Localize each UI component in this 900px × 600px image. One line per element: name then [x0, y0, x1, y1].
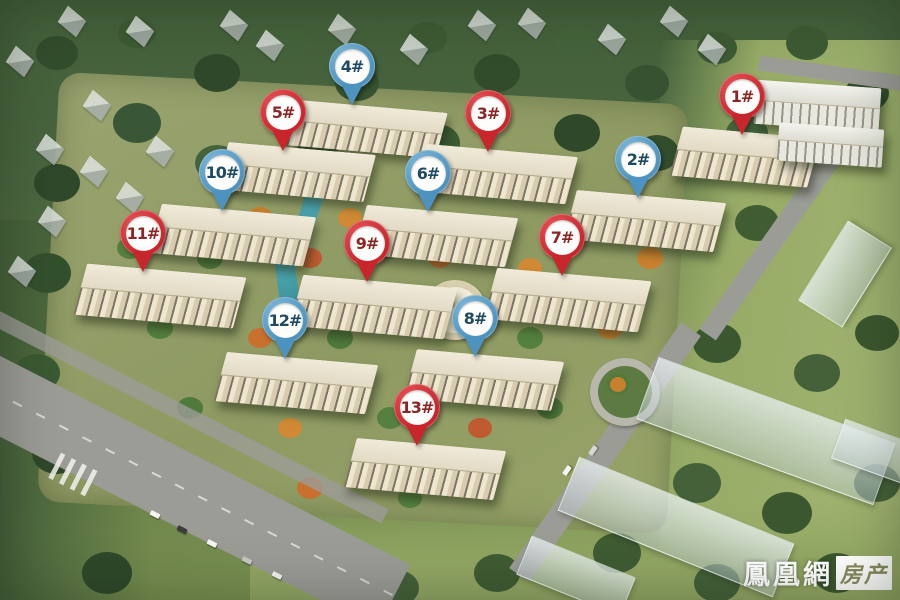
- building-marker-12[interactable]: 12#: [262, 297, 308, 361]
- village-house: [146, 136, 175, 168]
- marker-inner-disc: 10#: [205, 155, 240, 190]
- marker-inner-disc: 2#: [621, 142, 656, 177]
- marker-circle: 8#: [452, 295, 498, 341]
- marker-circle: 13#: [394, 384, 440, 430]
- marker-inner-disc: 1#: [725, 79, 760, 114]
- car: [241, 556, 252, 565]
- marker-label: 8#: [464, 309, 487, 328]
- marker-circle: 11#: [120, 210, 166, 256]
- marker-inner-disc: 13#: [400, 390, 435, 425]
- car: [562, 465, 572, 476]
- marker-label: 6#: [417, 164, 440, 183]
- marker-circle: 2#: [615, 136, 661, 182]
- building-marker-11[interactable]: 11#: [120, 210, 166, 274]
- marker-inner-disc: 6#: [411, 156, 446, 191]
- marker-label: 7#: [551, 228, 574, 247]
- building: [289, 275, 457, 340]
- village-house: [598, 24, 627, 56]
- marker-circle: 3#: [465, 90, 511, 136]
- village-house: [400, 34, 429, 66]
- marker-inner-disc: 4#: [335, 49, 370, 84]
- marker-inner-disc: 9#: [350, 226, 385, 261]
- car: [271, 571, 282, 580]
- village-house: [36, 134, 65, 166]
- watermark-channel-badge: 房产: [836, 556, 892, 590]
- car: [588, 445, 598, 456]
- building-marker-3[interactable]: 3#: [465, 90, 511, 154]
- marker-circle: 10#: [199, 149, 245, 195]
- village-house: [126, 16, 155, 48]
- site-aerial-view: 1#2#3#4#5#6#7#8#9#10#11#12#13# 鳳凰網 房产: [0, 0, 900, 600]
- building-marker-5[interactable]: 5#: [260, 89, 306, 153]
- car: [206, 539, 217, 548]
- marker-label: 13#: [401, 398, 434, 417]
- building-marker-7[interactable]: 7#: [539, 214, 585, 278]
- village-house: [518, 8, 547, 40]
- village-house: [8, 256, 37, 288]
- marker-label: 3#: [477, 104, 500, 123]
- building-layer: [0, 0, 900, 600]
- marker-circle: 12#: [262, 297, 308, 343]
- village-house: [6, 46, 35, 78]
- village-house: [698, 34, 727, 66]
- marker-inner-disc: 8#: [458, 301, 493, 336]
- marker-inner-disc: 3#: [471, 96, 506, 131]
- marker-circle: 9#: [344, 220, 390, 266]
- village-house: [660, 6, 689, 38]
- village-house: [116, 182, 145, 214]
- marker-label: 4#: [341, 57, 364, 76]
- marker-circle: 6#: [405, 150, 451, 196]
- commercial-building: [777, 122, 884, 167]
- watermark: 鳳凰網 房产: [743, 553, 892, 592]
- marker-label: 10#: [206, 163, 239, 182]
- building: [149, 204, 317, 267]
- car: [176, 525, 187, 534]
- marker-inner-disc: 12#: [268, 303, 303, 338]
- village-house: [220, 10, 249, 42]
- building-marker-2[interactable]: 2#: [615, 136, 661, 200]
- building-marker-8[interactable]: 8#: [452, 295, 498, 359]
- marker-circle: 4#: [329, 43, 375, 89]
- marker-label: 1#: [731, 87, 754, 106]
- village-house: [83, 90, 112, 122]
- building-marker-4[interactable]: 4#: [329, 43, 375, 107]
- building: [214, 352, 379, 414]
- marker-circle: 1#: [719, 73, 765, 119]
- building-marker-1[interactable]: 1#: [719, 73, 765, 137]
- car: [149, 510, 160, 519]
- marker-inner-disc: 5#: [266, 95, 301, 130]
- building-marker-9[interactable]: 9#: [344, 220, 390, 284]
- village-house: [38, 206, 67, 238]
- marker-circle: 5#: [260, 89, 306, 135]
- marker-label: 9#: [356, 234, 379, 253]
- village-house: [328, 14, 357, 46]
- building-marker-10[interactable]: 10#: [199, 149, 245, 213]
- marker-label: 5#: [272, 103, 295, 122]
- ghost-building: [798, 220, 892, 327]
- building-marker-6[interactable]: 6#: [405, 150, 451, 214]
- village-house: [256, 30, 285, 62]
- marker-circle: 7#: [539, 214, 585, 260]
- marker-inner-disc: 11#: [126, 216, 161, 251]
- village-house: [468, 10, 497, 42]
- marker-label: 2#: [627, 150, 650, 169]
- village-house: [58, 6, 87, 38]
- marker-label: 12#: [269, 311, 302, 330]
- marker-label: 11#: [127, 224, 160, 243]
- building-marker-13[interactable]: 13#: [394, 384, 440, 448]
- ghost-building: [516, 536, 636, 600]
- marker-inner-disc: 7#: [545, 220, 580, 255]
- watermark-site-name: 鳳凰網: [743, 553, 833, 592]
- village-house: [80, 156, 109, 188]
